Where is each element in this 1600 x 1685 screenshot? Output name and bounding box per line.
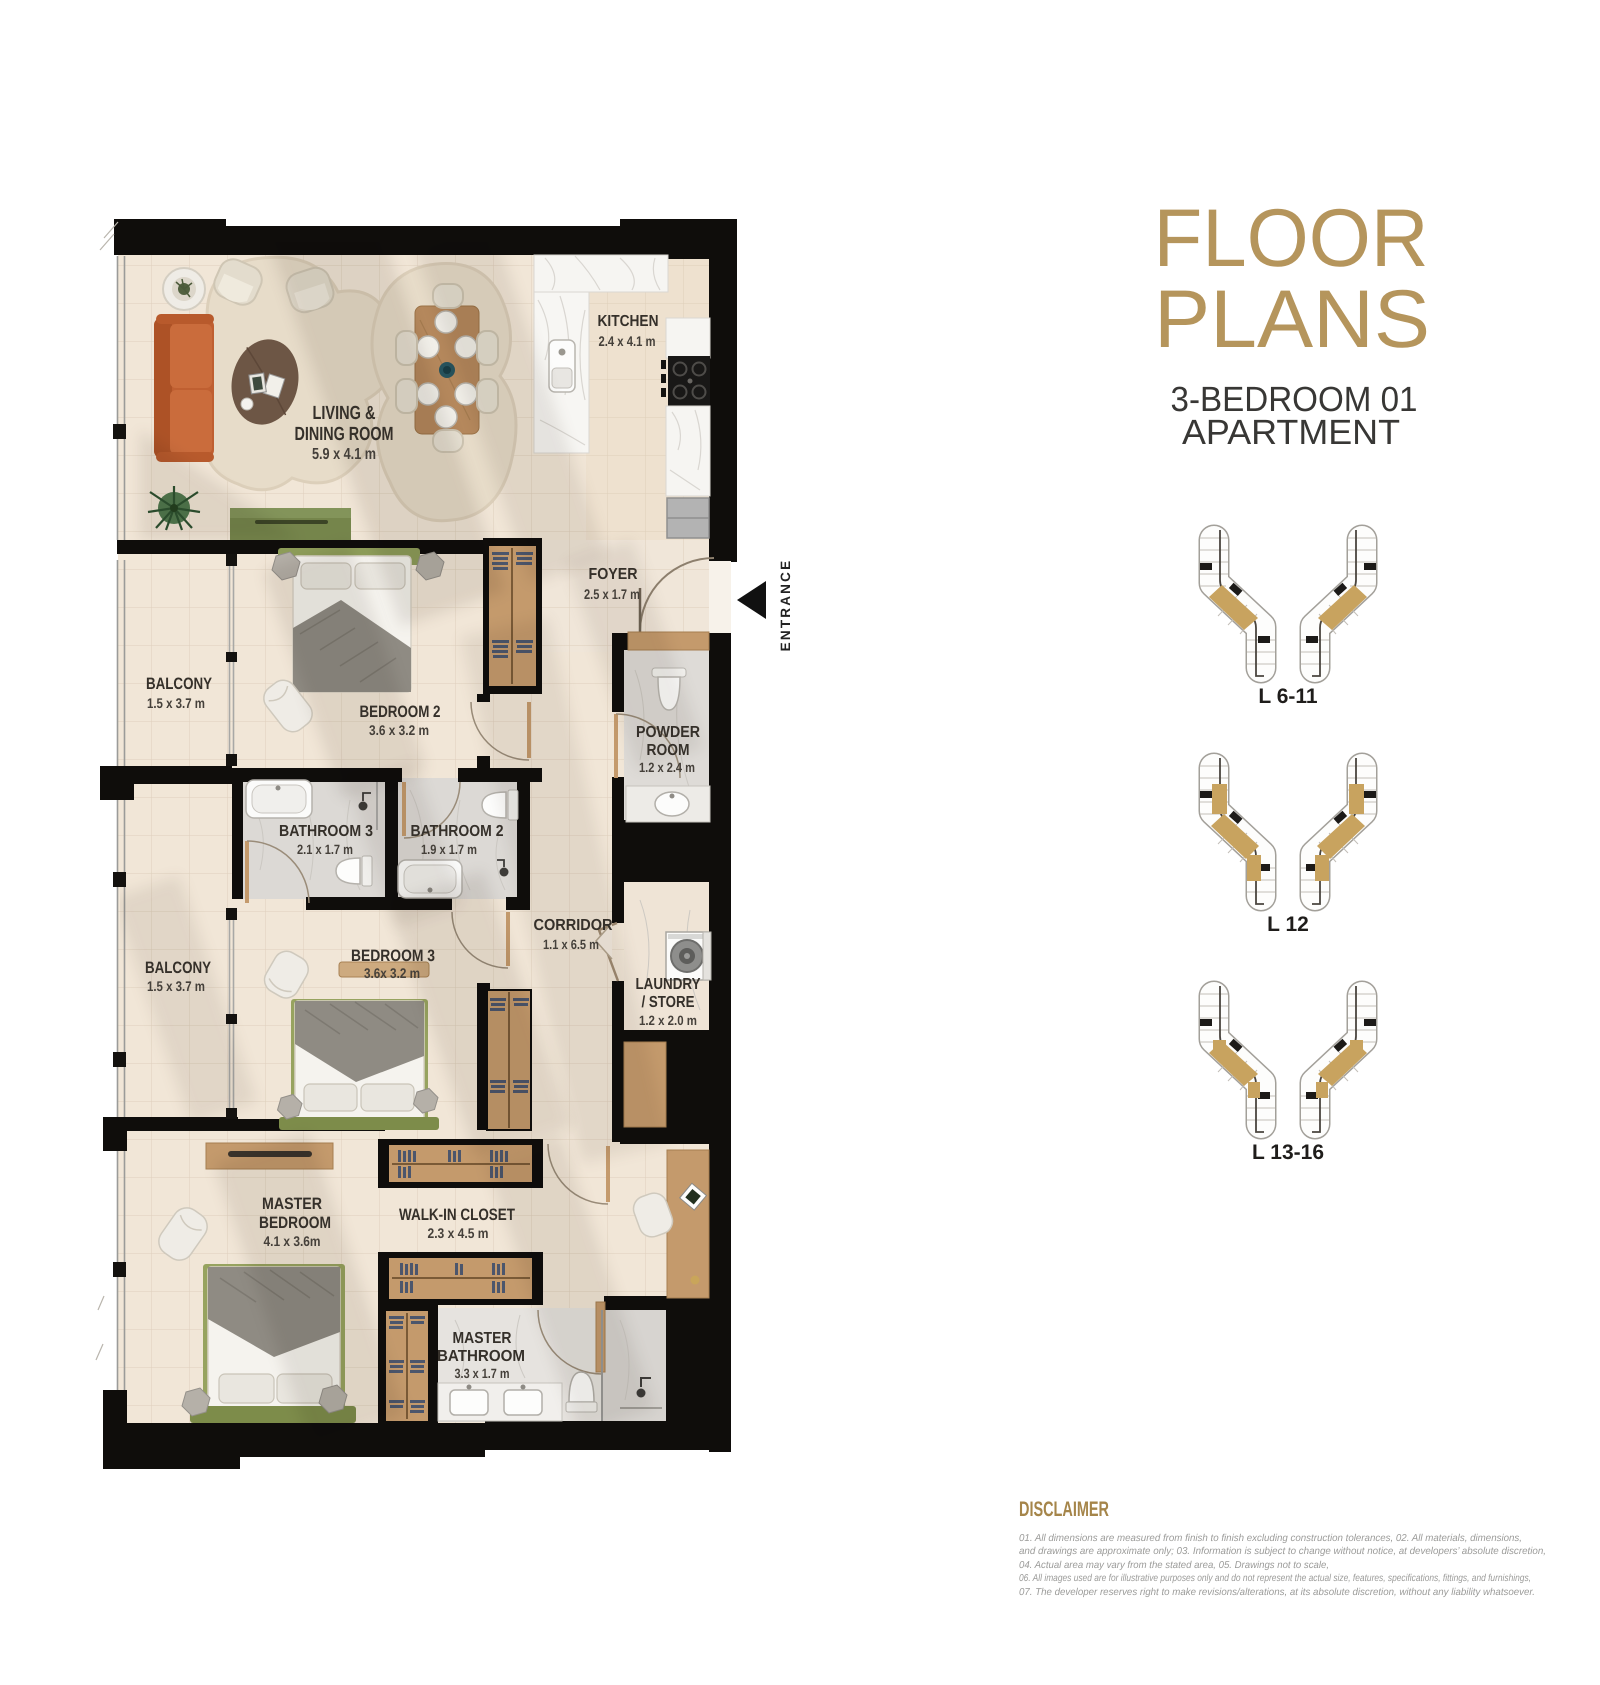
svg-text:BEDROOM: BEDROOM <box>259 1214 331 1232</box>
svg-text:BEDROOM 2: BEDROOM 2 <box>360 703 441 721</box>
svg-text:5.9 x 4.1 m: 5.9 x 4.1 m <box>312 446 376 463</box>
svg-text:2.5 x 1.7 m: 2.5 x 1.7 m <box>584 586 640 602</box>
svg-text:ROOM: ROOM <box>647 742 690 759</box>
svg-text:2.3 x 4.5 m: 2.3 x 4.5 m <box>428 1225 489 1241</box>
svg-text:1.2 x 2.0 m: 1.2 x 2.0 m <box>639 1013 697 1028</box>
svg-text:1.5 x 3.7 m: 1.5 x 3.7 m <box>147 978 205 994</box>
svg-text:L 13-16: L 13-16 <box>1252 1141 1324 1164</box>
svg-text:and drawings are approximate o: and drawings are approximate only; 03. I… <box>1019 1546 1546 1557</box>
svg-text:ENTRANCE: ENTRANCE <box>778 559 793 652</box>
svg-text:MASTER: MASTER <box>453 1330 512 1347</box>
svg-text:FOYER: FOYER <box>589 566 638 583</box>
svg-text:L 12: L 12 <box>1267 913 1309 936</box>
svg-text:DISCLAIMER: DISCLAIMER <box>1019 1498 1109 1521</box>
svg-text:KITCHEN: KITCHEN <box>598 313 659 330</box>
svg-text:BALCONY: BALCONY <box>146 675 212 693</box>
svg-text:/ STORE: / STORE <box>642 994 695 1011</box>
svg-text:07. The developer reserves rig: 07. The developer reserves right to make… <box>1019 1587 1535 1598</box>
svg-text:APARTMENT: APARTMENT <box>1182 413 1400 452</box>
svg-text:BATHROOM: BATHROOM <box>437 1348 525 1365</box>
svg-text:2.4 x 4.1 m: 2.4 x 4.1 m <box>599 333 656 349</box>
svg-text:MASTER: MASTER <box>262 1195 322 1213</box>
svg-text:BEDROOM 3: BEDROOM 3 <box>351 947 435 965</box>
svg-text:FLOOR: FLOOR <box>1154 193 1429 284</box>
svg-text:WALK-IN CLOSET: WALK-IN CLOSET <box>399 1206 515 1224</box>
svg-text:01. All dimensions are measure: 01. All dimensions are measured from fin… <box>1019 1533 1522 1544</box>
svg-text:POWDER: POWDER <box>636 724 700 741</box>
svg-text:06. All images used are for il: 06. All images used are for illustrative… <box>1019 1573 1531 1584</box>
svg-text:BATHROOM 2: BATHROOM 2 <box>411 823 504 840</box>
svg-text:L 6-11: L 6-11 <box>1258 685 1317 708</box>
svg-text:1.1 x 6.5 m: 1.1 x 6.5 m <box>543 937 599 952</box>
svg-text:LIVING &: LIVING & <box>313 403 376 424</box>
svg-text:1.5 x 3.7 m: 1.5 x 3.7 m <box>147 695 205 711</box>
svg-text:PLANS: PLANS <box>1154 274 1430 365</box>
svg-text:4.1 x 3.6m: 4.1 x 3.6m <box>264 1233 321 1249</box>
svg-text:3.6x 3.2 m: 3.6x 3.2 m <box>364 965 420 981</box>
svg-text:3.3 x 1.7 m: 3.3 x 1.7 m <box>455 1366 510 1381</box>
svg-text:BATHROOM 3: BATHROOM 3 <box>279 823 373 840</box>
svg-text:3.6 x 3.2 m: 3.6 x 3.2 m <box>369 722 429 738</box>
svg-text:BALCONY: BALCONY <box>145 959 211 977</box>
svg-text:CORRIDOR: CORRIDOR <box>534 917 613 934</box>
svg-text:2.1 x 1.7 m: 2.1 x 1.7 m <box>297 842 353 857</box>
svg-text:1.9 x 1.7 m: 1.9 x 1.7 m <box>421 842 477 857</box>
svg-text:LAUNDRY: LAUNDRY <box>636 976 701 993</box>
svg-text:1.2 x 2.4 m: 1.2 x 2.4 m <box>639 760 695 775</box>
svg-text:DINING ROOM: DINING ROOM <box>295 424 394 445</box>
svg-text:04. Actual area may vary from: 04. Actual area may vary from the stated… <box>1019 1560 1329 1571</box>
